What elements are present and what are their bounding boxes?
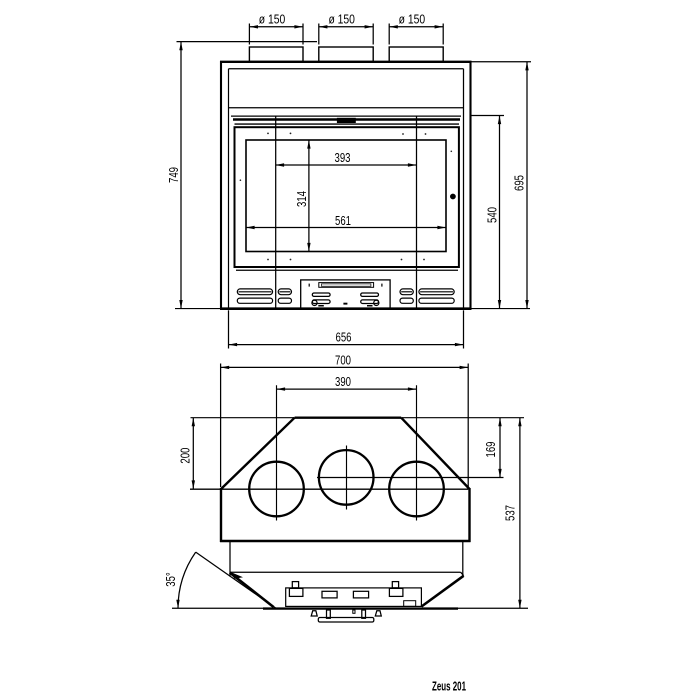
- svg-text:ø 150: ø 150: [259, 12, 286, 27]
- svg-text:749: 749: [166, 167, 181, 183]
- svg-text:537: 537: [502, 505, 517, 521]
- svg-text:200: 200: [177, 448, 192, 464]
- svg-text:656: 656: [336, 330, 352, 345]
- svg-text:35°: 35°: [163, 572, 178, 587]
- svg-text:540: 540: [485, 207, 500, 223]
- svg-text:Zeus 201: Zeus 201: [432, 680, 466, 694]
- svg-text:390: 390: [335, 374, 351, 389]
- svg-text:ø 150: ø 150: [399, 12, 426, 27]
- svg-text:ø 150: ø 150: [328, 12, 355, 27]
- svg-text:695: 695: [512, 175, 527, 191]
- svg-text:700: 700: [335, 352, 351, 367]
- svg-text:314: 314: [294, 191, 309, 207]
- svg-text:169: 169: [483, 442, 498, 458]
- svg-text:393: 393: [335, 150, 351, 165]
- svg-text:561: 561: [335, 213, 351, 228]
